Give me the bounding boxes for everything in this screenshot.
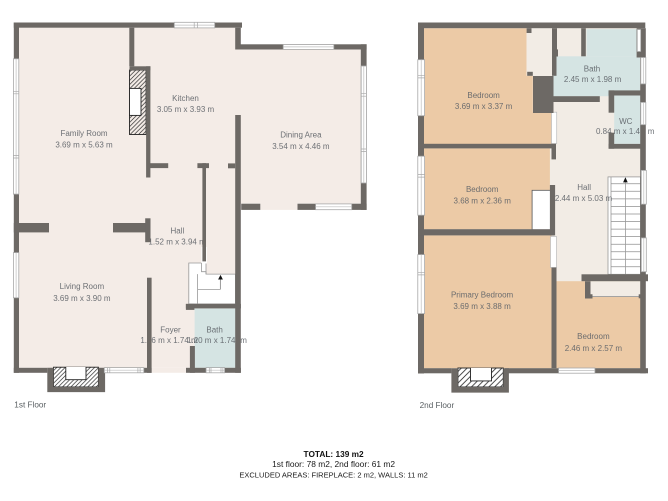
svg-text:Bedroom: Bedroom [466,185,499,194]
svg-text:1.20 m x 1.74: 1.20 m x 1.74 [187,336,236,345]
svg-text:Bath: Bath [584,65,600,74]
svg-text:2.44 m x 5.03 m: 2.44 m x 5.03 m [555,194,613,203]
svg-text:1.52 m x 3.94 m: 1.52 m x 3.94 m [148,238,206,247]
svg-text:TOTAL: 139 m2: TOTAL: 139 m2 [304,449,364,459]
svg-text:3.69 m x 3.88 m: 3.69 m x 3.88 m [453,302,511,311]
svg-text:1st Floor: 1st Floor [14,400,46,409]
svg-text:Kitchen: Kitchen [172,94,199,103]
svg-text:2nd Floor: 2nd Floor [420,401,455,410]
svg-text:WC: WC [619,117,633,126]
svg-text:2.46 m x 2.57 m: 2.46 m x 2.57 m [565,344,623,353]
svg-text:EXCLUDED AREAS: FIREPLACE: 2 m: EXCLUDED AREAS: FIREPLACE: 2 m2, WALLS: … [239,470,427,479]
svg-text:Bath: Bath [206,325,222,334]
svg-text:Hall: Hall [171,226,185,235]
svg-text:3.05 m x 3.93 m: 3.05 m x 3.93 m [157,105,215,114]
svg-text:Family Room: Family Room [60,129,107,138]
svg-text:2.45 m x 1.98 m: 2.45 m x 1.98 m [564,75,622,84]
svg-text:Bedroom: Bedroom [467,91,500,100]
svg-text:3.68 m x 2.36 m: 3.68 m x 2.36 m [454,197,512,206]
svg-text:3.54 m x 4.46 m: 3.54 m x 4.46 m [272,142,330,151]
svg-text:Foyer: Foyer [160,325,181,334]
svg-text:m: m [240,336,247,345]
svg-text:3.69 m x 3.37 m: 3.69 m x 3.37 m [455,102,513,111]
svg-text:3.69 m x 5.63 m: 3.69 m x 5.63 m [55,140,113,149]
svg-text:Bedroom: Bedroom [577,332,610,341]
svg-text:m: m [648,127,655,136]
svg-text:Living Room: Living Room [60,282,105,291]
svg-text:Dining Area: Dining Area [280,131,322,140]
svg-text:Hall: Hall [577,183,591,192]
svg-text:1st floor: 78 m2, 2nd floor: 6: 1st floor: 78 m2, 2nd floor: 61 m2 [272,459,395,469]
svg-text:Primary Bedroom: Primary Bedroom [451,290,514,299]
svg-text:3.69 m x 3.90 m: 3.69 m x 3.90 m [53,294,111,303]
svg-text:0.84 m x 1.4: 0.84 m x 1.4 [596,127,641,136]
